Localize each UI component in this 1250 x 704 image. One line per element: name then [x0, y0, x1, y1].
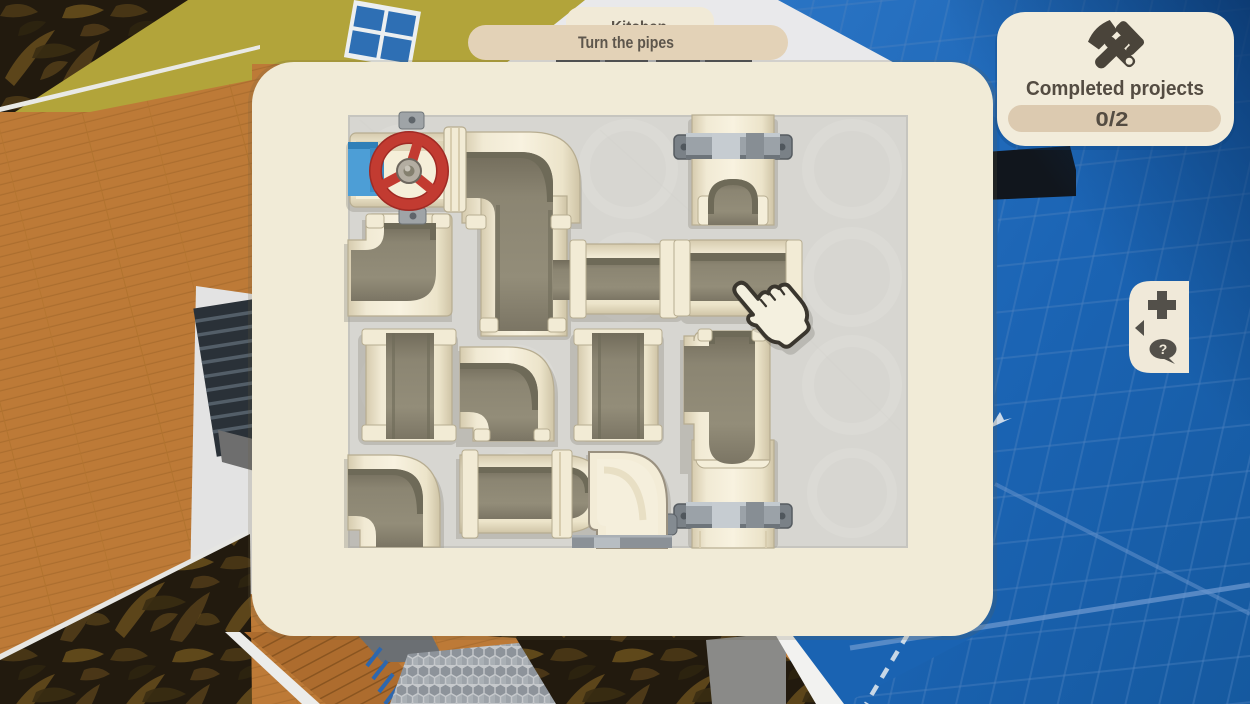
svg-text:Turn the pipes: Turn the pipes [578, 34, 674, 52]
svg-text:?: ? [1159, 341, 1168, 357]
svg-text:Completed projects: Completed projects [1026, 78, 1204, 100]
svg-text:0/2: 0/2 [1096, 109, 1129, 131]
